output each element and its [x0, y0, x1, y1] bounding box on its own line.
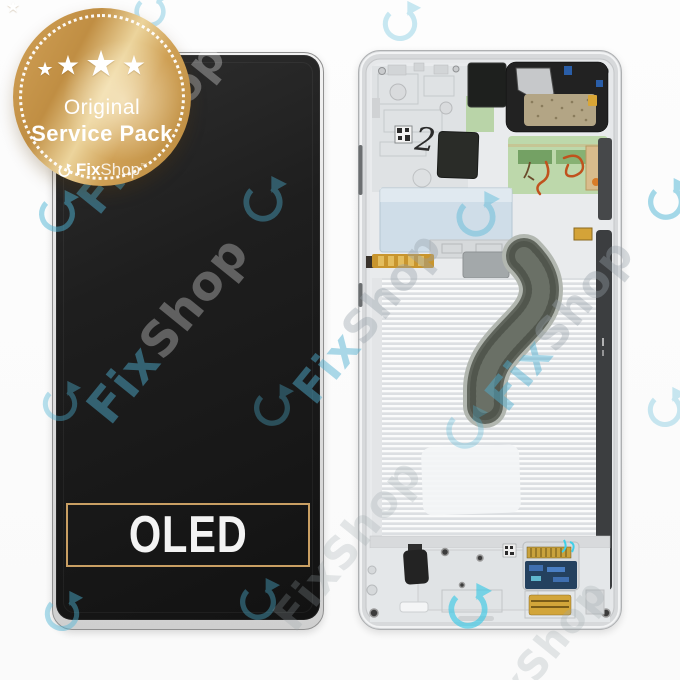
star-icon: ★ [122, 53, 146, 80]
brand-bold: Fix [76, 160, 101, 179]
refresh-arrow-icon [378, 0, 422, 44]
refresh-arrow-icon [643, 177, 680, 223]
gold-contact-small [574, 228, 592, 240]
star-icon: ★ [36, 61, 53, 80]
frosted-patch [421, 444, 521, 515]
display-back-graphic: 2 [358, 50, 622, 630]
refresh-arrow-icon [643, 386, 680, 430]
brand-light: Shop [100, 160, 140, 179]
badge-brand-logo: FixShop™ [57, 160, 147, 180]
sensor-square [437, 131, 479, 178]
pcb-green-region [508, 136, 608, 194]
display-back-panel: 2 [358, 50, 622, 630]
qr-sticker-small [503, 544, 516, 557]
badge-original-text: Original [64, 96, 140, 120]
display-connector [523, 540, 579, 590]
handwritten-mark: 2 [412, 119, 437, 159]
qr-sticker [395, 126, 412, 143]
gold-flex-connector [366, 254, 434, 268]
product-photo: OLED [0, 0, 680, 680]
camera-cutout [468, 63, 506, 107]
refresh-arrow-icon [57, 163, 72, 178]
speaker-assembly [506, 62, 608, 132]
trademark: ™ [140, 163, 147, 170]
oled-label: OLED [129, 505, 248, 565]
star-icon: ★ [6, 0, 20, 16]
rib-left-column [372, 278, 382, 540]
star-icon: ★ [85, 46, 117, 82]
badge-service-pack-text: Service Pack [31, 121, 173, 147]
oled-label-box: OLED [66, 503, 310, 567]
star-icon: ★ [56, 53, 80, 80]
dark-strip-upper [598, 138, 612, 220]
service-pack-badge: ★ ★ ★ ★ ★ Original Service Pack FixShop™ [13, 8, 191, 186]
